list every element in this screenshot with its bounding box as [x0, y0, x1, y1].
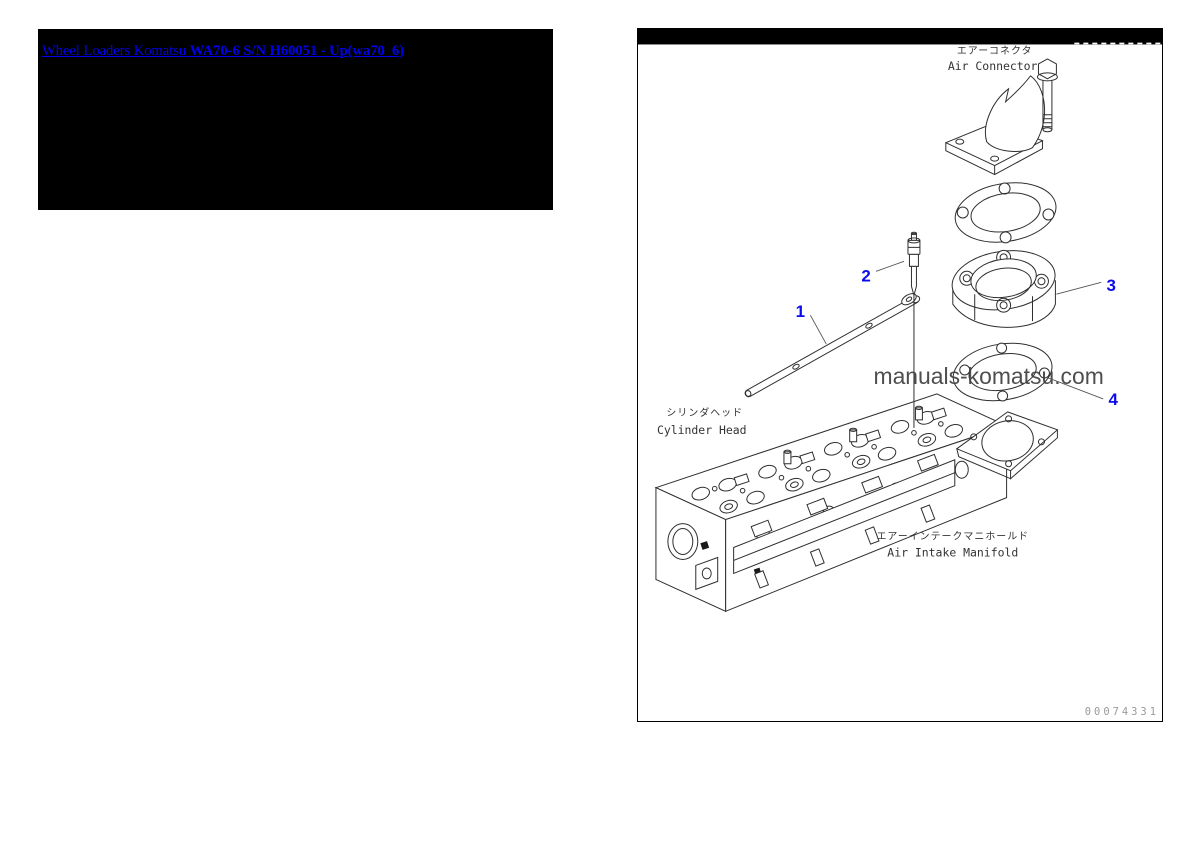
callout-4[interactable]: 4 — [1108, 390, 1118, 409]
parts-manual-page: Wheel Loaders Komatsu WA70-6 S/N H60051 … — [0, 0, 1190, 842]
air-connector-label-en: Air Connector — [948, 59, 1038, 73]
breadcrumb-link-model: WA70-6 S/N H60051 - Up(wa70_6) — [190, 43, 404, 59]
drawing-code: 00074331 — [1085, 706, 1159, 718]
cylinder-head-label-jp: シリンダヘッド — [666, 406, 743, 419]
gasket-upper-drawing — [951, 176, 1060, 249]
breadcrumb-link[interactable]: Wheel Loaders Komatsu WA70-6 S/N H60051 … — [42, 43, 404, 60]
parts-diagram-panel: manuals-komatsu.com 1 2 3 4 エアーコネクタ Air … — [637, 28, 1163, 722]
panel-top-bar — [638, 29, 1162, 44]
air-connector-label-jp: エアーコネクタ — [957, 45, 1033, 57]
glow-plug-drawing — [908, 232, 920, 428]
air-intake-manifold-label-en: Air Intake Manifold — [887, 545, 1018, 559]
spacer-drawing — [948, 244, 1059, 327]
air-intake-manifold-label-jp: エアーインテークマニホールド — [876, 531, 1029, 543]
callout-2[interactable]: 2 — [861, 266, 870, 285]
cylinder-head-label-en: Cylinder Head — [657, 423, 747, 437]
watermark-text: manuals-komatsu.com — [874, 363, 1104, 389]
breadcrumb-link-category: Wheel Loaders Komatsu — [42, 43, 186, 59]
callout-1[interactable]: 1 — [796, 302, 805, 321]
air-connector-drawing — [946, 76, 1045, 175]
parts-diagram-drawing: manuals-komatsu.com 1 2 3 4 エアーコネクタ Air … — [638, 29, 1162, 721]
header-banner: Wheel Loaders Komatsu WA70-6 S/N H60051 … — [38, 29, 553, 210]
callout-3[interactable]: 3 — [1106, 276, 1115, 295]
